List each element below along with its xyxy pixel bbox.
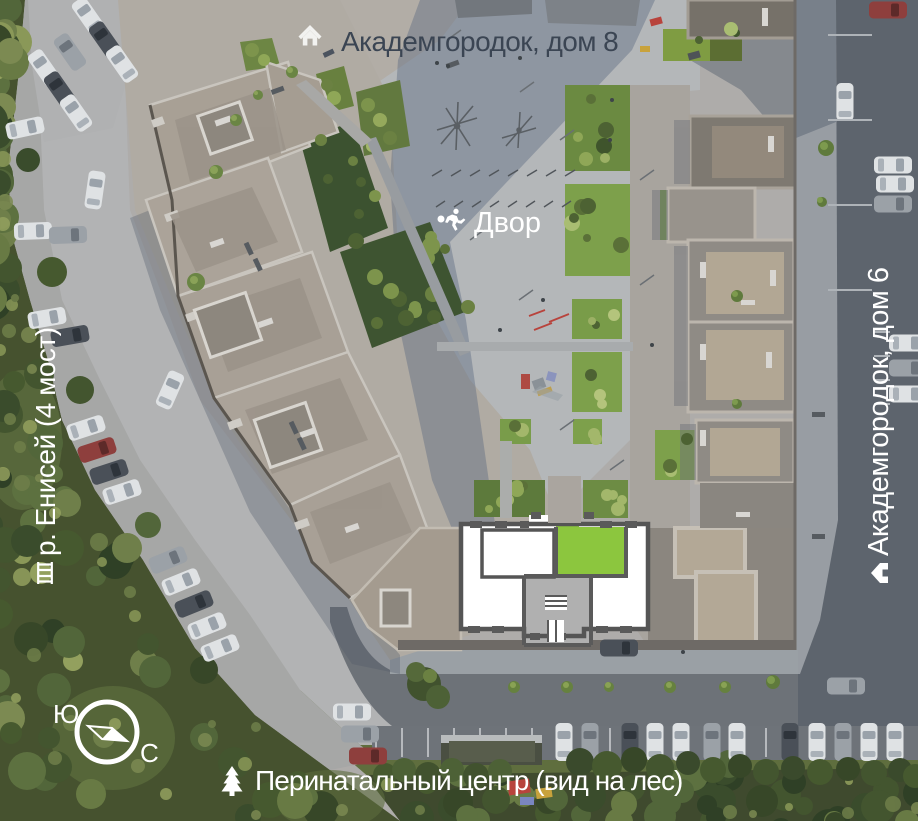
svg-text:С: С bbox=[140, 738, 159, 768]
svg-text:Академгородок, дом 6: Академгородок, дом 6 bbox=[863, 268, 895, 557]
svg-text:Ю: Ю bbox=[53, 699, 79, 729]
svg-text:Академгородок, дом 8: Академгородок, дом 8 bbox=[341, 26, 618, 57]
svg-text:Двор: Двор bbox=[474, 207, 541, 239]
svg-text:Перинатальный центр (вид на ле: Перинатальный центр (вид на лес) bbox=[255, 765, 683, 796]
svg-text:р. Енисей (4 мост): р. Енисей (4 мост) bbox=[30, 327, 61, 556]
